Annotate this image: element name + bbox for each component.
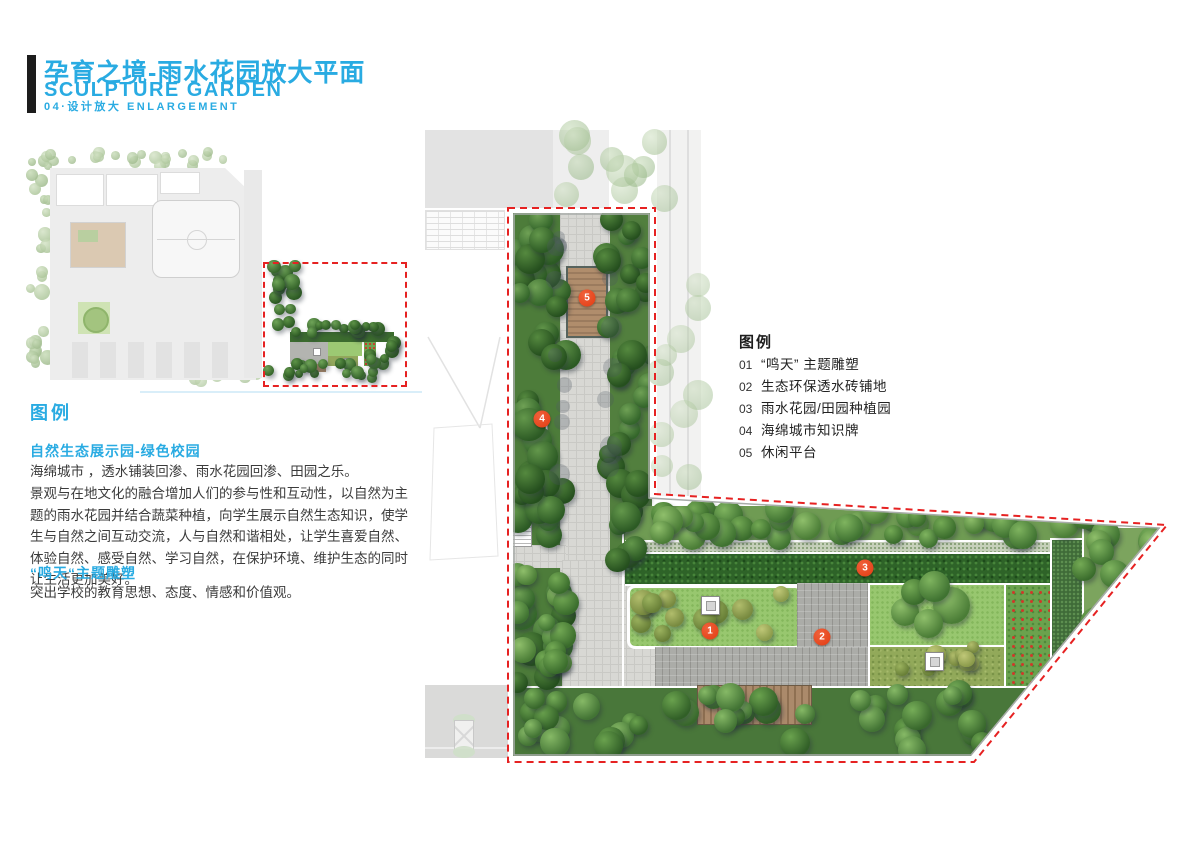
site-overview-thumbnail [28,146,408,388]
plan-marker-3: 3 [857,560,874,577]
title-accent-bar [27,55,36,113]
divider-rule [140,391,422,393]
description-paragraph-3: 突出学校的教育思想、态度、情感和价值观。 [30,582,418,604]
plan-marker-4: 4 [534,411,551,428]
page-subtitle: 04·设计放大 ENLARGEMENT [44,98,239,114]
plan-markers: 54312 [420,128,1195,788]
left-legend-heading: 图例 [30,399,72,425]
section-title-sculpture: “鸣天“主题雕塑 [30,563,136,583]
description-paragraph-1: 海绵城市 ，透水铺装回渗、雨水花园回渗、田园之乐。 [30,461,418,483]
plan-marker-1: 1 [702,623,719,640]
design-sheet: 孕育之境-雨水花园放大平面 SCULPTURE GARDEN 04·设计放大 E… [0,0,1200,849]
enlargement-area-outline [263,262,407,387]
plan-marker-2: 2 [814,629,831,646]
plan-marker-5: 5 [579,290,596,307]
main-plan: 54312 [420,128,1195,788]
section-title-eco-garden: 自然生态展示园-绿色校园 [30,441,201,461]
